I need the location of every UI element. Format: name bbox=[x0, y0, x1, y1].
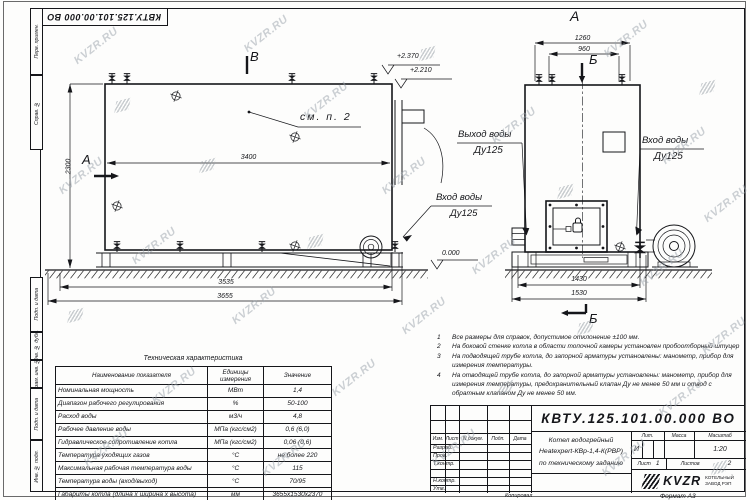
drawing-labels: 3400 2300 3535 3655 см. п. 2 А В +2.370 … bbox=[0, 0, 750, 500]
dim-2300: 2300 bbox=[66, 150, 73, 184]
view-label-a-front: А bbox=[570, 8, 579, 24]
front-outlet-dn: Ду125 bbox=[474, 145, 503, 156]
section-label-b-bottom: Б bbox=[589, 311, 597, 326]
callout-see-item-2: см. п. 2 bbox=[300, 111, 352, 123]
dim-3655: 3655 bbox=[48, 293, 402, 300]
elevation-zero: 0.000 bbox=[442, 250, 460, 257]
dim-1530: 1530 bbox=[512, 290, 646, 297]
dim-960: 960 bbox=[549, 46, 619, 53]
footer-copied-label: Копировал bbox=[505, 493, 532, 499]
side-inlet-dn: Ду125 bbox=[450, 208, 477, 219]
drawing-sheet: КВТУ.125.101.00.000 ВО Перв. примен. Спр… bbox=[0, 0, 750, 500]
section-label-v-side: В bbox=[250, 49, 259, 64]
dim-3535: 3535 bbox=[60, 279, 392, 286]
section-label-a-side: А bbox=[82, 152, 91, 167]
front-inlet-dn: Ду125 bbox=[654, 151, 683, 162]
section-label-b-top: Б bbox=[589, 52, 597, 67]
dim-3400: 3400 bbox=[105, 154, 392, 161]
front-inlet-label: Вход воды bbox=[642, 135, 688, 146]
elevation-2210: +2.210 bbox=[410, 67, 432, 74]
elevation-2370: +2.370 bbox=[397, 53, 419, 60]
dim-1430: 1430 bbox=[518, 276, 640, 283]
front-outlet-label: Выход воды bbox=[458, 129, 511, 140]
side-inlet-label: Вход воды bbox=[436, 192, 482, 203]
footer-format-label: Формат А3 bbox=[660, 493, 696, 500]
dim-1260: 1260 bbox=[535, 35, 630, 42]
